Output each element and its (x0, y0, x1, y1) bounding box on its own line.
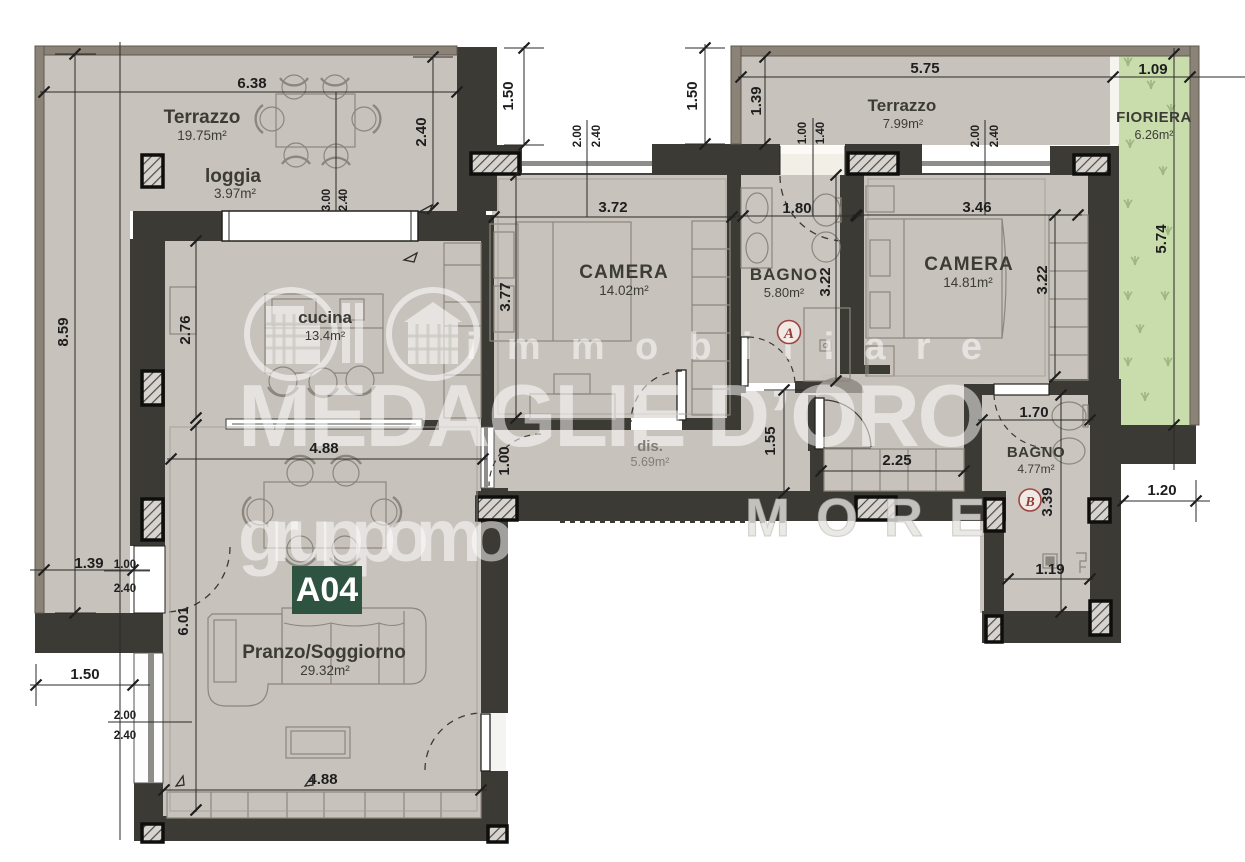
svg-text:1.50: 1.50 (70, 666, 99, 683)
svg-text:3.00: 3.00 (321, 189, 333, 211)
svg-text:2.25: 2.25 (882, 452, 911, 469)
svg-text:Terrazzo: Terrazzo (868, 96, 937, 115)
svg-text:A04: A04 (296, 571, 358, 609)
svg-text:7.99m²: 7.99m² (883, 116, 924, 131)
svg-text:5.69m²: 5.69m² (631, 455, 670, 469)
svg-text:2.40: 2.40 (114, 583, 136, 595)
svg-text:2.40: 2.40 (114, 730, 136, 742)
svg-text:13.4m²: 13.4m² (305, 328, 346, 343)
svg-text:3.72: 3.72 (598, 199, 627, 216)
svg-text:B: B (1024, 495, 1034, 510)
svg-text:Pranzo/Soggiorno: Pranzo/Soggiorno (242, 642, 406, 663)
svg-text:8.59: 8.59 (55, 317, 72, 346)
svg-text:1.39: 1.39 (748, 86, 765, 115)
svg-text:1.00: 1.00 (797, 122, 809, 144)
svg-text:4.88: 4.88 (309, 440, 338, 457)
svg-text:29.32m²: 29.32m² (300, 663, 350, 678)
svg-text:2.76: 2.76 (177, 315, 194, 344)
svg-text:3.22: 3.22 (817, 267, 834, 296)
svg-text:1.80: 1.80 (782, 200, 811, 217)
svg-text:FIORIERA: FIORIERA (1116, 109, 1192, 126)
svg-text:1.20: 1.20 (1147, 482, 1176, 499)
svg-text:1.19: 1.19 (1035, 561, 1064, 578)
svg-text:2.00: 2.00 (572, 125, 584, 147)
svg-text:gruppomo: gruppomo (238, 494, 514, 577)
svg-text:2.40: 2.40 (591, 125, 603, 147)
svg-text:5.80m²: 5.80m² (764, 285, 805, 300)
svg-text:1.50: 1.50 (684, 81, 701, 110)
svg-text:CAMERA: CAMERA (579, 262, 668, 283)
svg-text:6.38: 6.38 (237, 75, 266, 92)
svg-text:1.00: 1.00 (114, 559, 136, 571)
svg-text:5.75: 5.75 (910, 60, 939, 77)
svg-text:2.40: 2.40 (989, 125, 1001, 147)
svg-text:6.26m²: 6.26m² (1135, 128, 1174, 142)
svg-text:3.77: 3.77 (497, 282, 514, 311)
svg-text:2.00: 2.00 (114, 710, 136, 722)
svg-text:Terrazzo: Terrazzo (164, 107, 241, 128)
svg-text:6.01: 6.01 (175, 606, 192, 635)
svg-text:MEDAGLIE D’ORO: MEDAGLIE D’ORO (238, 366, 986, 465)
svg-text:1.00: 1.00 (496, 446, 513, 475)
svg-text:1.50: 1.50 (500, 81, 517, 110)
svg-text:2.40: 2.40 (338, 189, 350, 211)
svg-text:3.46: 3.46 (962, 199, 991, 216)
svg-text:1.09: 1.09 (1138, 61, 1167, 78)
svg-text:3.22: 3.22 (1034, 265, 1051, 294)
svg-text:1.70: 1.70 (1019, 404, 1048, 421)
svg-text:19.75m²: 19.75m² (177, 128, 227, 143)
svg-text:14.81m²: 14.81m² (943, 275, 993, 290)
svg-text:5.74: 5.74 (1153, 224, 1170, 254)
svg-text:BAGNO: BAGNO (1007, 444, 1065, 461)
svg-text:2.40: 2.40 (413, 117, 430, 146)
svg-text:BAGNO: BAGNO (750, 265, 818, 284)
svg-text:loggia: loggia (205, 166, 261, 187)
svg-text:3.97m²: 3.97m² (214, 186, 257, 201)
svg-text:cucina: cucina (298, 308, 352, 327)
svg-text:14.02m²: 14.02m² (599, 283, 649, 298)
svg-text:1.40: 1.40 (815, 122, 827, 144)
svg-text:CAMERA: CAMERA (924, 254, 1013, 275)
svg-text:1.39: 1.39 (74, 555, 103, 572)
svg-text:A: A (783, 326, 794, 342)
svg-text:1.55: 1.55 (762, 426, 779, 455)
svg-text:dis.: dis. (637, 438, 663, 455)
svg-text:4.77m²: 4.77m² (1017, 462, 1054, 476)
svg-text:2.00: 2.00 (970, 125, 982, 147)
